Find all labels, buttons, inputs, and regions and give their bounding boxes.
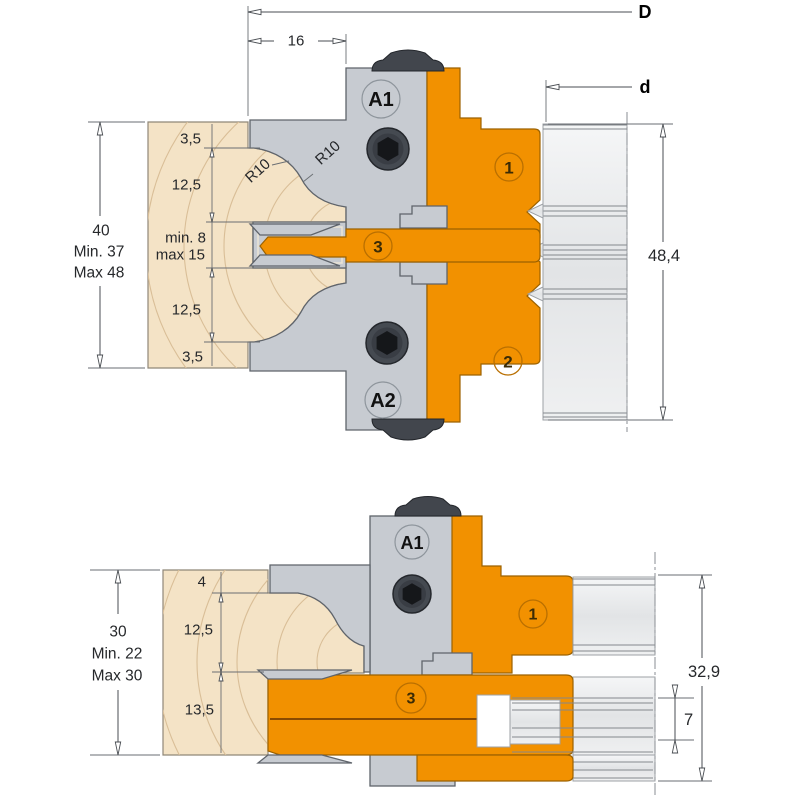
slot-cutter-step-bottom: [417, 755, 573, 781]
profile-dim-35-top: 3,5: [180, 131, 201, 148]
knife-slot-opening: [477, 695, 510, 747]
profile-dim-4-bottom: 4: [198, 574, 206, 591]
profile-dim-35-bottom: 3,5: [182, 349, 203, 366]
profile-cutter-orange-bottom: [452, 516, 573, 673]
profile-dim-135-bottom: 13,5: [185, 702, 214, 719]
stock-thickness-top-1: 40: [92, 223, 110, 240]
cutting-height-label-bottom: 32,9: [688, 663, 720, 681]
profile-dim-125-bottom: 12,5: [184, 622, 213, 639]
slot-backing-lower-bottom: [258, 755, 352, 763]
knife-set-a2-label: A2: [370, 390, 396, 412]
hex-socket-screw-lower-icon: [366, 322, 408, 364]
hex-socket-screw-upper-icon: [367, 128, 409, 170]
cutting-height-label-top: 48,4: [648, 247, 680, 265]
profile-dim-125-lower: 12,5: [172, 302, 201, 319]
groove-knife-height-label: 7: [684, 711, 693, 729]
bottom-assembly-30mm: A1 1 3 30 Min. 22 Max 30 4 12,5 13,5 32,…: [90, 457, 720, 800]
stock-thickness-bottom-1: 30: [109, 624, 127, 641]
technical-drawing-page: A1 A2 1 2 3 D 16 d 48,4: [0, 0, 800, 800]
knife-band-step-bottom: [573, 755, 655, 781]
stock-thickness-top-3: Max 48: [74, 265, 125, 282]
knife-projection-band-top: [543, 124, 627, 420]
knife-set-a1-label-bottom: A1: [400, 533, 423, 553]
cutterhead-diagram: A1 A2 1 2 3 D 16 d 48,4: [0, 0, 800, 800]
clamp-nut-bottom-icon: [372, 419, 444, 440]
cutter-3-label: 3: [373, 238, 382, 257]
cutter-1-label-bottom: 1: [529, 607, 538, 624]
profile-dim-min8: min. 8: [165, 230, 206, 247]
knife-band-profile-bottom: [573, 577, 655, 655]
top-assembly-40mm: A1 A2 1 2 3 D 16 d 48,4: [74, 2, 680, 452]
cutter-1-label: 1: [504, 159, 513, 178]
stock-thickness-bottom-2: Min. 22: [92, 646, 143, 663]
cutter-2-label: 2: [503, 353, 512, 372]
bore-diameter-label: d: [640, 77, 651, 97]
overall-diameter-label: D: [639, 2, 652, 22]
stock-thickness-top-2: Min. 37: [74, 244, 125, 261]
clamp-nut-top-icon: [372, 50, 444, 71]
knife-set-a1-label: A1: [368, 89, 394, 111]
cutter-3-label-bottom: 3: [407, 691, 416, 708]
stock-thickness-bottom-3: Max 30: [92, 668, 143, 685]
cutterhead-width-label: 16: [288, 33, 305, 50]
knife-band-slot-bottom: [573, 677, 655, 755]
clamp-nut-bottom-diagram-icon: [395, 497, 461, 517]
hex-socket-screw-bottom-icon: [393, 575, 431, 613]
profile-dim-125-upper: 12,5: [172, 177, 201, 194]
profile-dim-max15: max 15: [156, 247, 205, 264]
